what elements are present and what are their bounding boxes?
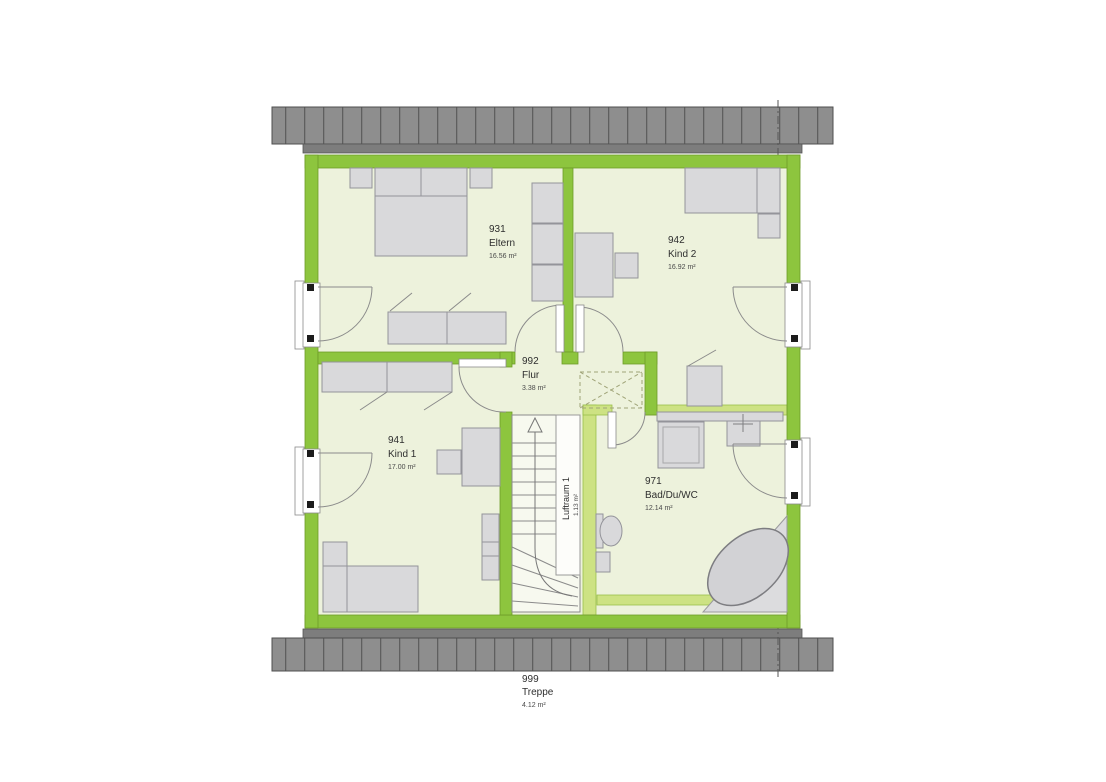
wall-top [305, 155, 800, 168]
room-area: 16.92 m² [668, 264, 696, 271]
room-id: 931 [489, 224, 506, 235]
room-area: 12.14 m² [645, 505, 673, 512]
room-name: Bad/Du/WC [645, 490, 698, 501]
room-name: Eltern [489, 238, 515, 249]
wall-right [787, 155, 800, 628]
room-id: 941 [388, 435, 405, 446]
wardrobe [687, 366, 722, 406]
bath-left-wall [583, 405, 596, 615]
shower [658, 422, 704, 468]
wardrobe [532, 224, 563, 264]
nightstand [350, 168, 372, 188]
chair [615, 253, 638, 278]
wc-bowl [600, 516, 622, 546]
room-area: 3.38 m² [522, 385, 546, 392]
bed-pillow [323, 542, 347, 567]
room-id: 942 [668, 235, 685, 246]
wall-center-vertical [563, 168, 573, 352]
nightstand [470, 168, 492, 188]
room-id: 992 [522, 356, 539, 367]
room-id: 971 [645, 476, 662, 487]
counter [657, 412, 783, 421]
room-name: Kind 2 [668, 249, 697, 260]
room-id: 999 [522, 674, 539, 685]
room-name: Treppe [522, 687, 554, 698]
wall-bottom [305, 615, 800, 628]
chair [437, 450, 461, 474]
roof-band-top [272, 107, 833, 153]
shelf [482, 514, 499, 580]
room-area: 17.00 m² [388, 464, 416, 471]
nightstand [758, 214, 780, 238]
desk [575, 233, 613, 297]
room-name: Flur [522, 370, 540, 381]
bed [685, 168, 780, 213]
wall-flur-right [645, 352, 657, 415]
bed [323, 566, 418, 612]
floor-plan-page: 931 Eltern 16.56 m² 942 Kind 2 16.92 m² … [0, 0, 1106, 782]
desk [462, 428, 500, 486]
luftraum-name: Luftraum 1 [561, 477, 571, 520]
wall-stair-left [500, 412, 512, 615]
room-name: Kind 1 [388, 449, 417, 460]
wall-door-stub [562, 352, 578, 364]
bidet [596, 552, 610, 572]
room-area: 16.56 m² [489, 253, 517, 260]
floor-plan-drawing: 931 Eltern 16.56 m² 942 Kind 2 16.92 m² … [0, 0, 1106, 782]
roof-band-bottom [272, 629, 833, 671]
wall-left [305, 155, 318, 628]
luftraum-area: 1.13 m² [573, 493, 580, 516]
room-area: 4.12 m² [522, 702, 546, 709]
wardrobe [532, 183, 563, 223]
wardrobe [532, 265, 563, 301]
